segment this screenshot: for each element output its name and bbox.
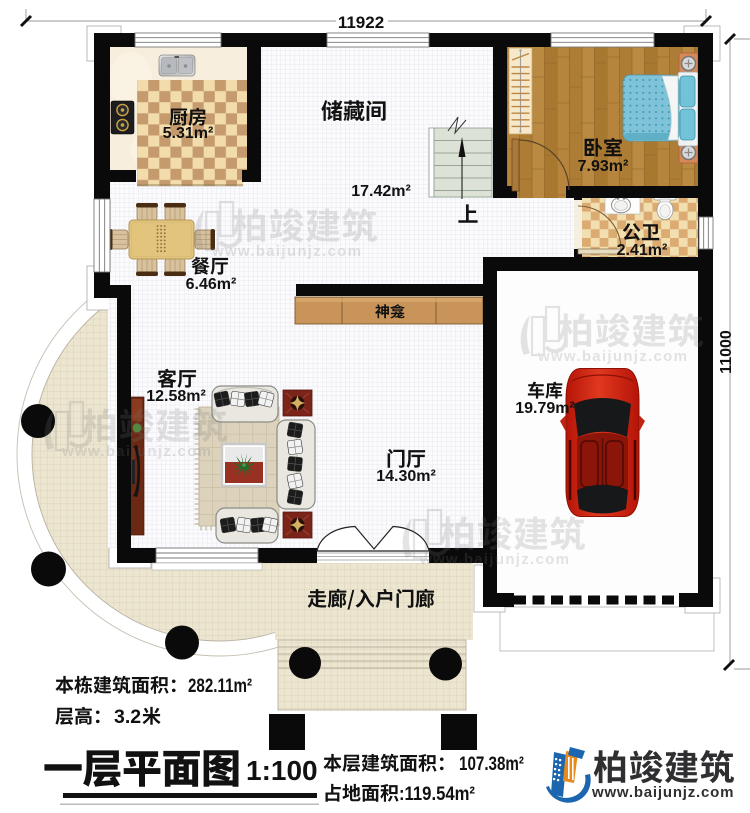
svg-text:282.11m²: 282.11m² xyxy=(188,675,252,697)
svg-text:3.2: 3.2 xyxy=(114,706,141,728)
svg-text:19.79m²: 19.79m² xyxy=(515,400,575,417)
svg-text:7.93m²: 7.93m² xyxy=(578,158,629,175)
svg-text:11922: 11922 xyxy=(338,13,384,32)
svg-text:12.58m²: 12.58m² xyxy=(146,388,206,405)
svg-text:www.baijunjz.com: www.baijunjz.com xyxy=(591,784,734,801)
svg-text:6.46m²: 6.46m² xyxy=(186,276,237,293)
svg-text:5.31m²: 5.31m² xyxy=(163,125,214,142)
svg-text:1:100: 1:100 xyxy=(246,755,318,786)
svg-text:2.41m²: 2.41m² xyxy=(617,242,668,259)
svg-text:14.30m²: 14.30m² xyxy=(376,468,436,485)
svg-text:17.42m²: 17.42m² xyxy=(351,183,411,200)
svg-text:11000: 11000 xyxy=(718,330,735,374)
svg-text::119.54m²: :119.54m² xyxy=(399,783,475,805)
svg-text:107.38m²: 107.38m² xyxy=(459,753,524,775)
